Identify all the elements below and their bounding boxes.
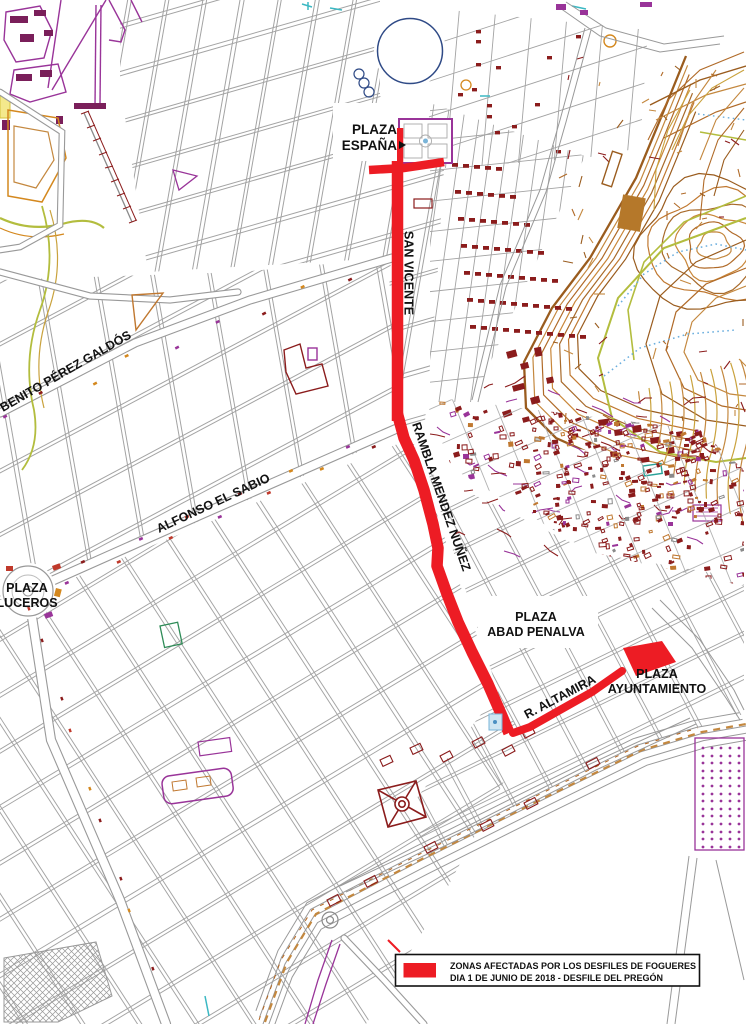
svg-text:LUCEROS: LUCEROS [0, 596, 58, 610]
svg-text:PLAZA: PLAZA [352, 122, 397, 137]
svg-text:ESPAÑA: ESPAÑA [342, 138, 398, 153]
svg-text:PLAZA: PLAZA [6, 581, 48, 595]
svg-text:DIA 1 DE JUNIO DE 2018 - DESFI: DIA 1 DE JUNIO DE 2018 - DESFILE DEL PRE… [450, 972, 663, 983]
svg-text:AYUNTAMIENTO: AYUNTAMIENTO [608, 682, 707, 696]
svg-text:SAN VICENTE: SAN VICENTE [402, 231, 416, 315]
svg-text:PLAZA: PLAZA [515, 610, 557, 624]
svg-text:ABAD PENALVA: ABAD PENALVA [487, 625, 584, 639]
svg-text:PLAZA: PLAZA [636, 667, 678, 681]
svg-text:ZONAS AFECTADAS POR LOS DESFIL: ZONAS AFECTADAS POR LOS DESFILES DE FOGU… [450, 961, 696, 971]
